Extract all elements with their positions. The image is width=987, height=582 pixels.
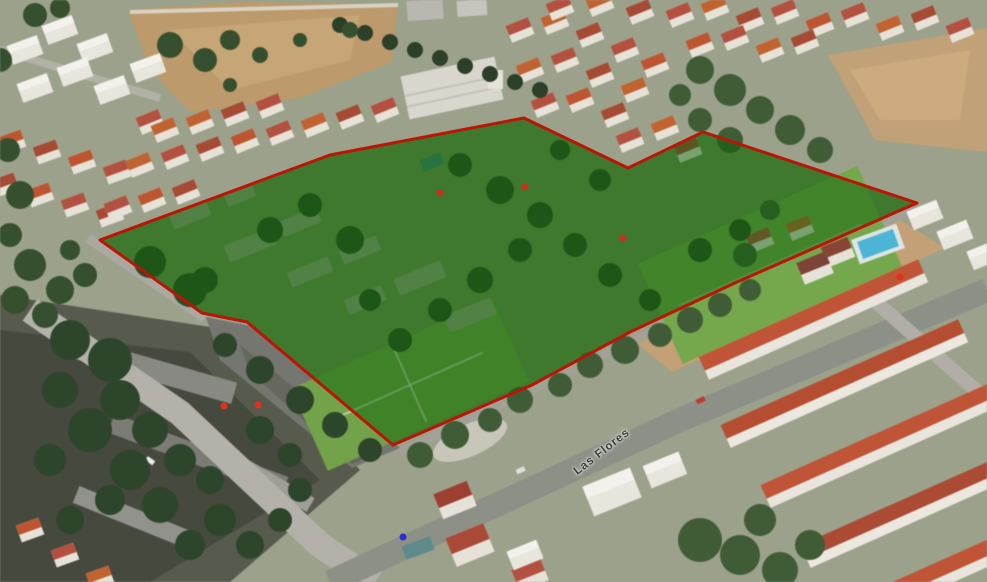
- map-point-marker[interactable]: [400, 534, 407, 541]
- map-point-marker[interactable]: [255, 402, 262, 409]
- map-point-marker[interactable]: [897, 274, 904, 281]
- map-point-marker[interactable]: [437, 190, 444, 197]
- parcel-polygon[interactable]: [100, 118, 917, 445]
- map-point-marker[interactable]: [522, 184, 529, 191]
- map-point-marker[interactable]: [620, 235, 627, 242]
- parcel-boundary-overlay[interactable]: [0, 0, 987, 582]
- map-point-marker[interactable]: [221, 403, 228, 410]
- google-earth-3d-view[interactable]: Las Flores: [0, 0, 987, 582]
